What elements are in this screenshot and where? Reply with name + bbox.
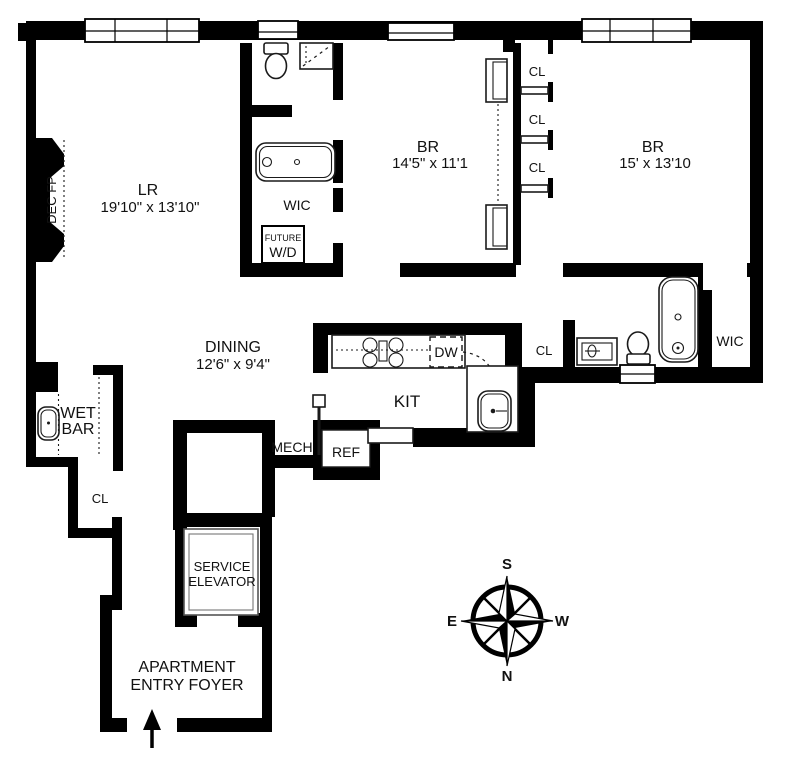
compass-south-label: S (502, 556, 512, 573)
wardrobe-icon-bottom (486, 205, 507, 249)
dining-label: DINING (205, 339, 261, 356)
wardrobe-icon-top (486, 59, 507, 102)
closet2-label: CL (529, 112, 546, 127)
refrigerator-label: REF (332, 444, 360, 460)
closet-shelves (521, 87, 548, 192)
toilet-icon-bathroom2 (627, 332, 650, 364)
bedroom1-dims: 14'5" x 11'1 (392, 155, 468, 172)
foyer-closet-label: CL (92, 491, 109, 506)
floorplan-page: S N E W LR 19'10" x 13'10" BR 14'5" x 11… (0, 0, 800, 757)
bedroom1-label: BR (417, 139, 439, 156)
wet-bar-label-line1: WET (60, 405, 96, 422)
window-bathroom2 (620, 365, 655, 383)
living-room-label: LR (138, 182, 158, 199)
shower-icon (300, 43, 333, 69)
dishwasher-label: DW (434, 344, 458, 360)
compass-east-label: E (447, 613, 457, 630)
compass-north-label: N (502, 668, 513, 685)
hall-closet-label: CL (536, 343, 553, 358)
kitchen-sink-icon (478, 391, 511, 431)
entry-foyer-label-line2: ENTRY FOYER (130, 677, 243, 694)
walk-in-closet1-label: WIC (283, 197, 310, 213)
kitchen-counter-low (368, 428, 413, 443)
wet-bar-sink-icon (38, 407, 59, 440)
entry-foyer-label-line1: APARTMENT (138, 659, 235, 676)
future-wd-label-line1: FUTURE (265, 233, 302, 243)
floorplan-drawing: S N E W LR 19'10" x 13'10" BR 14'5" x 11… (0, 0, 800, 757)
window-bathroom1 (258, 21, 298, 39)
wet-bar-label-line2: BAR (62, 421, 95, 438)
mechanical-label: MECH (271, 439, 312, 455)
living-room-dims: 19'10" x 13'10" (101, 199, 200, 216)
window-bedroom2 (582, 19, 691, 42)
fireplace-label: DEC FP (44, 176, 59, 224)
service-elevator-label-line1: SERVICE (194, 559, 251, 574)
bedroom2-dims: 15' x 13'10 (619, 155, 691, 172)
window-bedroom1 (388, 23, 454, 40)
future-wd-label-line2: W/D (269, 244, 296, 260)
toilet-icon-bathroom1 (264, 43, 288, 79)
bathtub-icon-bathroom2 (659, 277, 698, 362)
compass-rose: S N E W (447, 556, 570, 685)
window-living-room (85, 19, 199, 42)
vanity-sink-icon-bathroom2 (577, 338, 617, 365)
fixtures (38, 43, 698, 748)
service-elevator-label-line2: ELEVATOR (188, 574, 255, 589)
kitchen-label: KIT (394, 392, 420, 411)
closet3-label: CL (529, 160, 546, 175)
bedroom2-label: BR (642, 139, 664, 156)
entry-arrow-icon (143, 709, 161, 748)
dining-dims: 12'6" x 9'4" (196, 356, 270, 373)
bathtub-icon-bathroom1 (256, 143, 335, 181)
closet1-label: CL (529, 64, 546, 79)
walk-in-closet2-label: WIC (716, 333, 743, 349)
compass-west-label: W (555, 613, 570, 630)
